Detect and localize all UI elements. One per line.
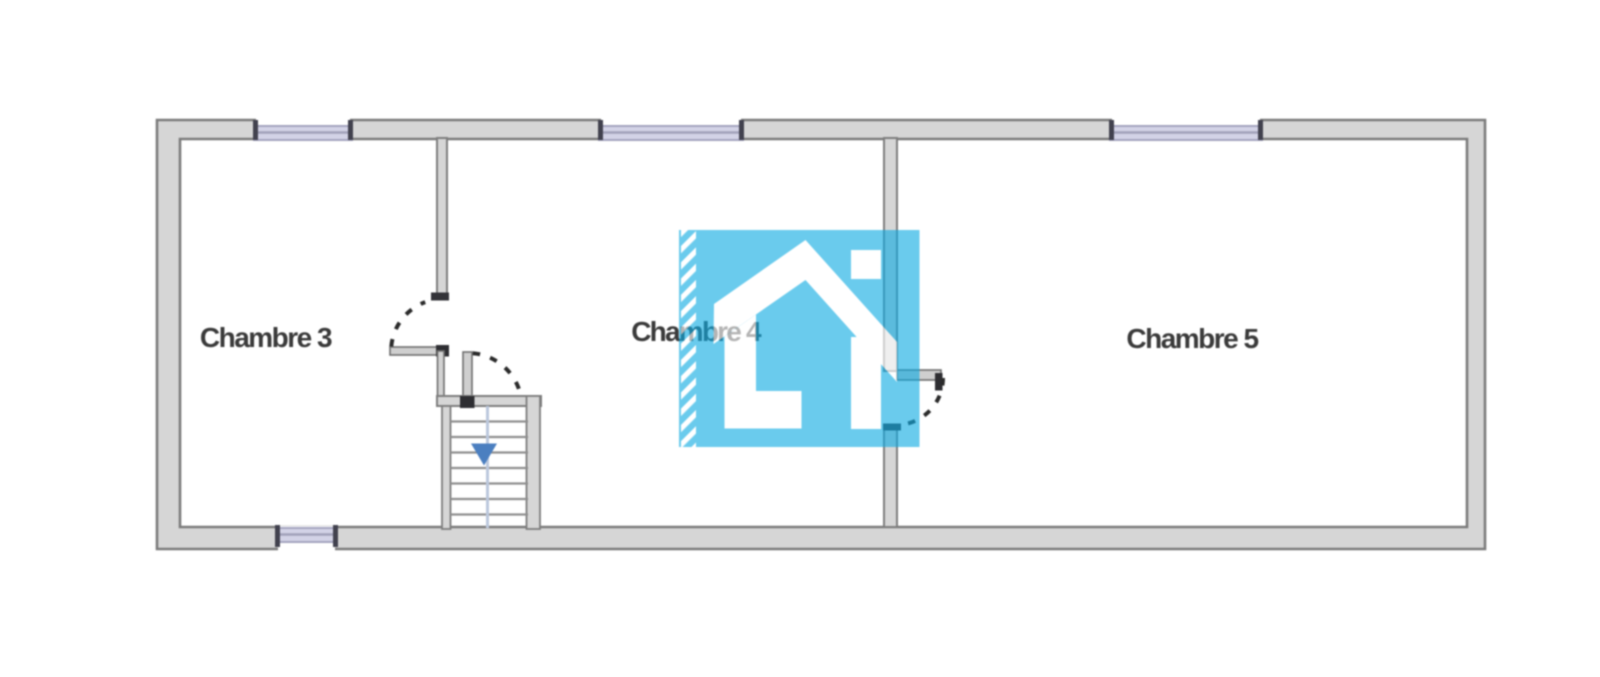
svg-text:Chambre 3: Chambre 3 [200,322,332,353]
svg-text:Chambre 5: Chambre 5 [1126,323,1258,354]
